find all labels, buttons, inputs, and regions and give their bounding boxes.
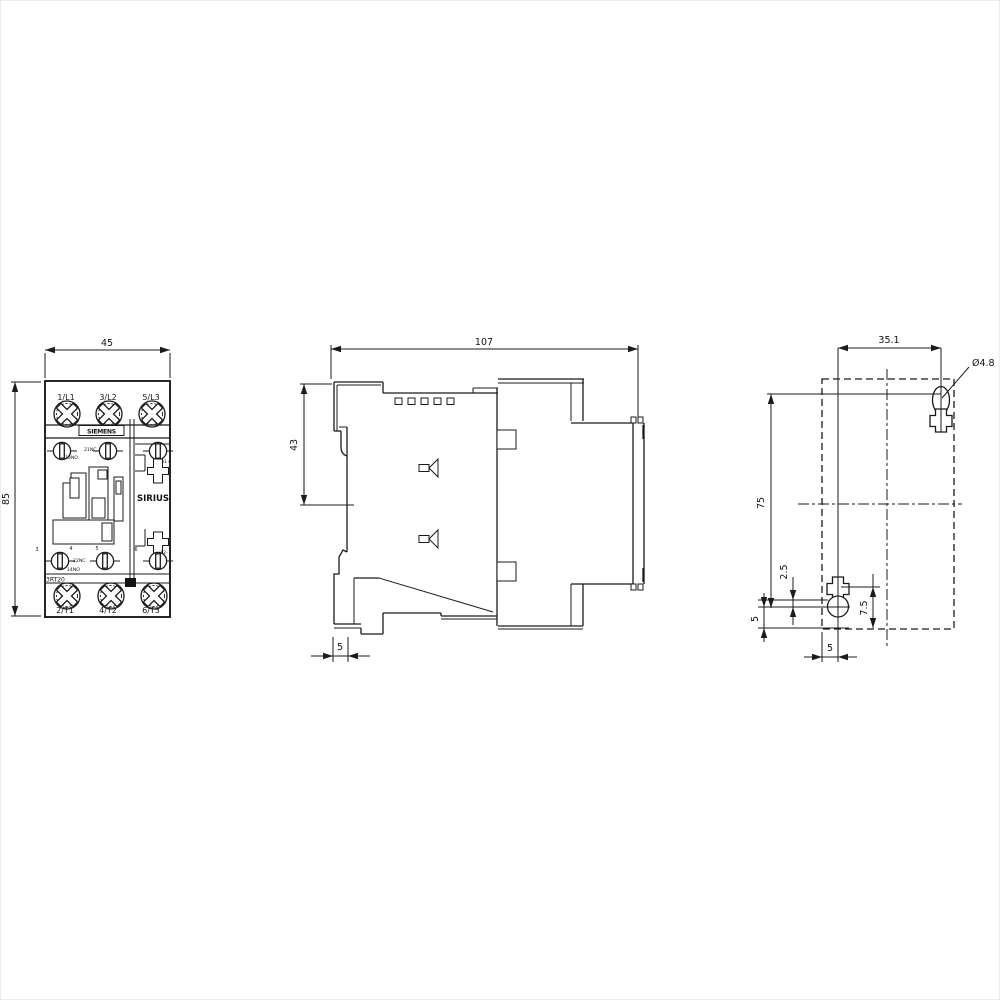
din-height-label: 43 [289,439,300,451]
hole-diameter-callout: Ø4.8 [942,358,995,398]
terminal-label-6T3: 6/T3 [142,606,160,615]
terminal-number-5: 5 [95,546,98,552]
aux-label-13no: 13NO [65,455,78,461]
brand-label: SIEMENS [87,429,116,436]
side-outline [334,379,644,634]
hole-spacing-h-label: 35.1 [878,335,899,346]
din-height-dimension: 43 [289,384,354,505]
bottom-terminal-labels: 2/T1 4/T2 6/T3 [56,606,160,615]
aux-label-14no: 14NO [67,567,80,573]
drilling-plan: 35.1 Ø4.8 75 2.5 7.5 5 [750,335,995,662]
hole-spacing-v-label: 75 [756,497,767,509]
slot-length-label: 7.5 [859,600,870,615]
front-width-dimension: 45 [45,338,170,378]
product-code-label: 3RT20 [46,577,65,584]
divider-gap [125,578,136,587]
offset-top-label: 2.5 [779,564,790,579]
rail-offset-dimension: 5 [311,637,370,662]
front-height-dimension: 85 [1,382,41,616]
cable-entry-icon [419,459,438,477]
side-width-label: 107 [475,337,493,348]
rail-offset-label: 5 [337,642,343,653]
series-label: SIRIUS [137,494,169,504]
front-height-label: 85 [1,493,12,505]
hole-spacing-v-dimension: 75 [756,394,774,608]
slot-length-dimension: 7.5 [859,574,876,628]
terminal-label-2T1: 2/T1 [56,606,74,615]
dimension-drawing-page: 45 85 1/L1 3/L2 5/L3 SIEMENS [0,0,1000,1000]
front-view: 45 85 1/L1 3/L2 5/L3 SIEMENS [1,338,173,617]
offset-bottom-dimension: 5 [804,632,857,662]
cable-entry-icon [419,530,438,548]
front-width-label: 45 [101,338,113,349]
aux-label-21nc: 21NC [84,447,97,453]
terminal-number-6: 6 [134,547,137,553]
hole-diameter-label: Ø4.8 [972,358,995,369]
top-keyhole-slot [767,348,952,432]
hole-spacing-h-dimension: 35.1 [838,335,941,351]
terminal-number-4: 4 [69,546,72,552]
offset-left-label: 5 [750,616,761,622]
side-view: 107 43 [289,337,644,662]
terminal-label-4T2: 4/T2 [99,606,117,615]
offset-bottom-label: 5 [827,643,833,654]
terminal-number-3: 3 [35,547,38,553]
offset-top-dimension: 2.5 [779,564,796,625]
aux-label-22nc: 22NC [73,558,86,564]
side-width-dimension: 107 [331,337,638,418]
